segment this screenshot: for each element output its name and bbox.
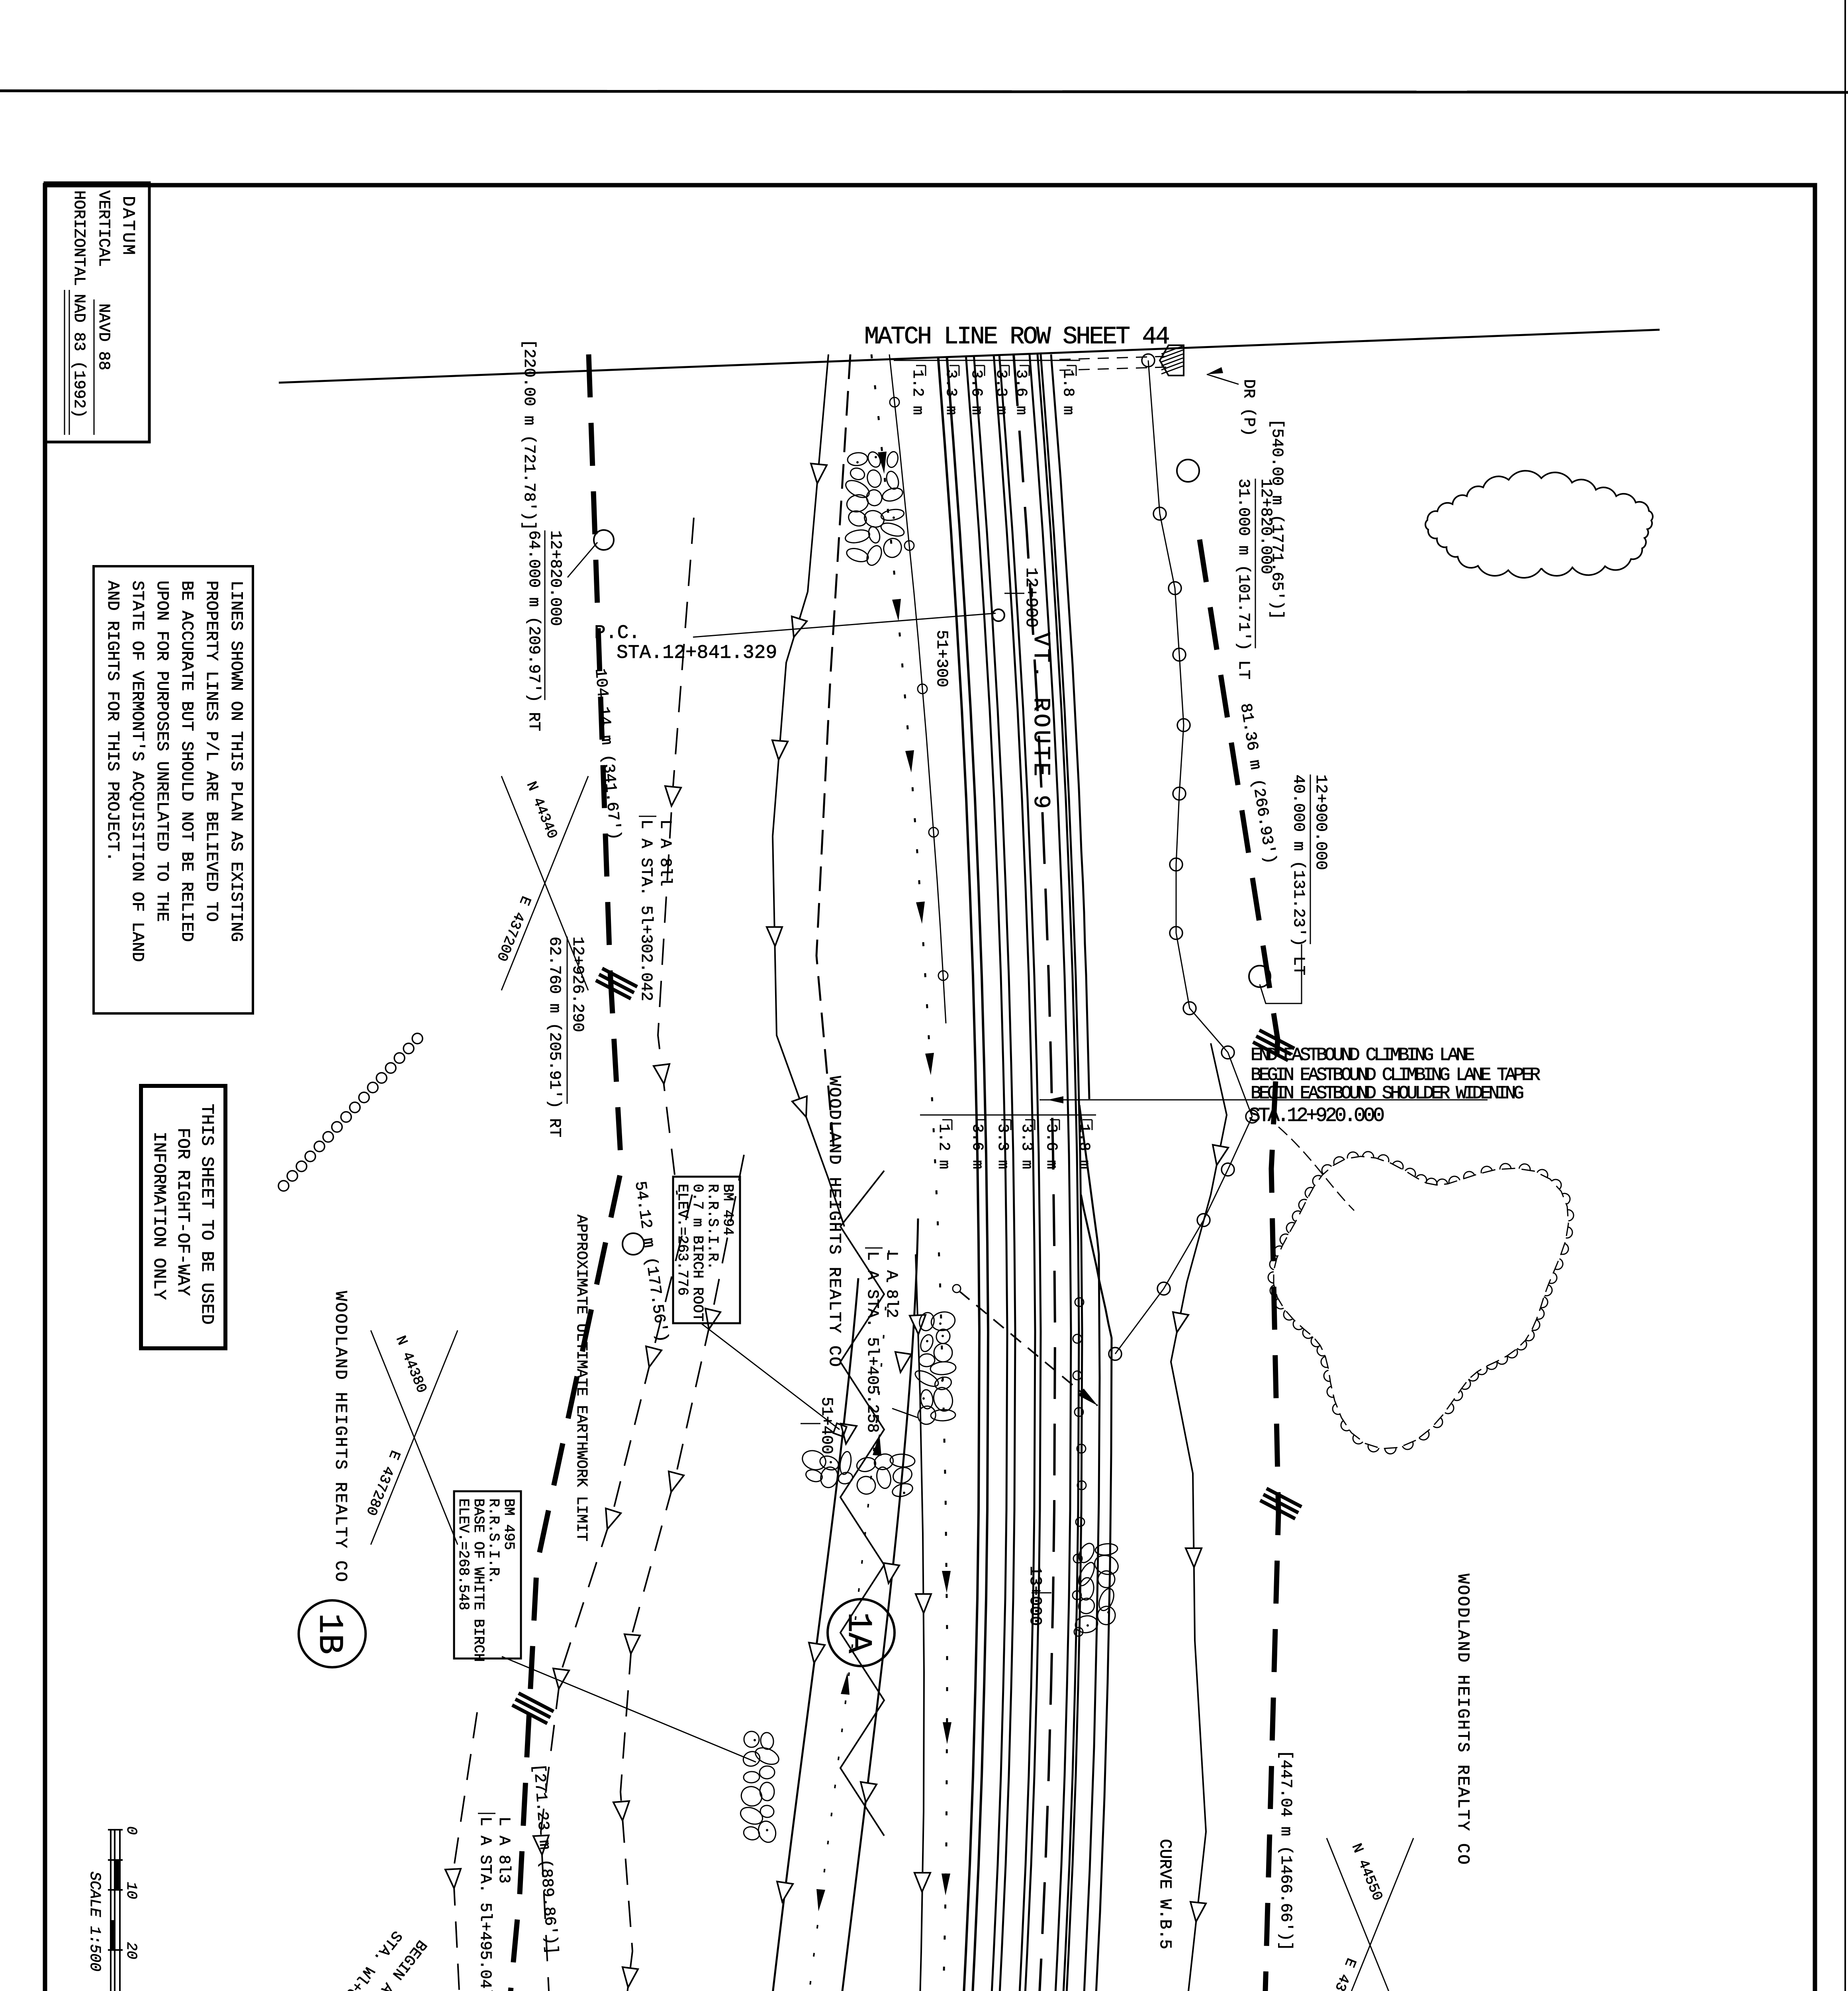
svg-text:0: 0 bbox=[123, 1826, 139, 1835]
svg-text:LINES SHOWN ON THIS PLAN AS EX: LINES SHOWN ON THIS PLAN AS EXISTING bbox=[227, 581, 246, 942]
svg-text:1.8 m: 1.8 m bbox=[1059, 370, 1077, 415]
svg-text:L A 8l3: L A 8l3 bbox=[495, 1817, 513, 1883]
svg-text:3.6 m: 3.6 m bbox=[1012, 370, 1030, 415]
svg-text:UPON FOR PURPOSES UNRELATED TO: UPON FOR PURPOSES UNRELATED TO THE bbox=[153, 581, 172, 922]
svg-text:13+000: 13+000 bbox=[1026, 1566, 1045, 1626]
svg-text:BM 494: BM 494 bbox=[720, 1184, 736, 1236]
svg-text:ELEV.=263.776: ELEV.=263.776 bbox=[674, 1184, 691, 1296]
svg-text:3.3 m: 3.3 m bbox=[942, 370, 959, 415]
svg-text:L A STA. 5l+405.258: L A STA. 5l+405.258 bbox=[863, 1251, 881, 1433]
svg-text:SCALE 1:500: SCALE 1:500 bbox=[86, 1872, 103, 1971]
svg-text:L A 8l2: L A 8l2 bbox=[882, 1251, 900, 1318]
svg-text:NAD 83 (1992): NAD 83 (1992) bbox=[70, 294, 88, 418]
svg-text:12+926.290: 12+926.290 bbox=[568, 937, 586, 1032]
svg-text:[220.00 m (721.78')]: [220.00 m (721.78')] bbox=[520, 339, 538, 530]
svg-text:END EASTBOUND CLIMBING LANE: END EASTBOUND CLIMBING LANE bbox=[1251, 1045, 1474, 1066]
svg-text:R.R.S.I.R.: R.R.S.I.R. bbox=[485, 1498, 502, 1584]
svg-text:12+820.000: 12+820.000 bbox=[1257, 479, 1274, 574]
svg-text:AND RIGHTS FOR THIS PROJECT.: AND RIGHTS FOR THIS PROJECT. bbox=[103, 581, 122, 862]
svg-text:THIS SHEET TO BE USED: THIS SHEET TO BE USED bbox=[197, 1104, 217, 1325]
svg-text:3.3 m: 3.3 m bbox=[994, 1124, 1011, 1169]
svg-text:CURVE W.B.5: CURVE W.B.5 bbox=[1155, 1839, 1175, 1949]
svg-text:WOODLAND HEIGHTS REALTY CO: WOODLAND HEIGHTS REALTY CO bbox=[331, 1291, 350, 1583]
svg-text:51+300: 51+300 bbox=[932, 630, 950, 687]
svg-text:10: 10 bbox=[123, 1882, 139, 1899]
svg-text:STA.12+841.329: STA.12+841.329 bbox=[617, 642, 777, 664]
svg-text:APPROXIMATE ULTIMATE EARTHWORK: APPROXIMATE ULTIMATE EARTHWORK LIMIT bbox=[573, 1215, 590, 1541]
svg-text:51+400: 51+400 bbox=[817, 1397, 835, 1454]
svg-text:3.6 m: 3.6 m bbox=[969, 1124, 986, 1169]
svg-text:40.000 m (131.23') LT: 40.000 m (131.23') LT bbox=[1289, 774, 1307, 975]
svg-text:FOR RIGHT-OF-WAY: FOR RIGHT-OF-WAY bbox=[173, 1128, 193, 1296]
svg-text:20: 20 bbox=[123, 1942, 139, 1959]
svg-text:62.760 m (205.91') RT: 62.760 m (205.91') RT bbox=[545, 937, 563, 1137]
svg-text:3.3 m: 3.3 m bbox=[1018, 1124, 1035, 1169]
svg-text:BEGIN EASTBOUND SHOULDER WIDEN: BEGIN EASTBOUND SHOULDER WIDENING bbox=[1251, 1083, 1523, 1104]
svg-text:ELEV.=268.548: ELEV.=268.548 bbox=[455, 1498, 472, 1610]
svg-text:MATCH LINE ROW SHEET 44: MATCH LINE ROW SHEET 44 bbox=[864, 323, 1169, 351]
svg-text:INFORMATION ONLY: INFORMATION ONLY bbox=[149, 1132, 169, 1300]
svg-text:WOODLAND HEIGHTS REALTY CO: WOODLAND HEIGHTS REALTY CO bbox=[1453, 1574, 1472, 1866]
svg-text:L A STA. 5l+495.04l: L A STA. 5l+495.04l bbox=[476, 1817, 494, 1991]
svg-text:BASE OF WHITE BIRCH: BASE OF WHITE BIRCH bbox=[470, 1498, 487, 1662]
svg-text:[447.04 m (1466.66')]: [447.04 m (1466.66')] bbox=[1276, 1750, 1294, 1951]
svg-text:0.7 m BIRCH ROOT: 0.7 m BIRCH ROOT bbox=[689, 1184, 706, 1322]
svg-text:12+820.000: 12+820.000 bbox=[546, 530, 564, 626]
svg-text:STA.12+920.000: STA.12+920.000 bbox=[1249, 1105, 1384, 1127]
svg-text:WOODLAND HEIGHTS REALTY CO: WOODLAND HEIGHTS REALTY CO bbox=[825, 1076, 844, 1368]
svg-text:P.C.: P.C. bbox=[594, 622, 640, 644]
svg-text:BM 495: BM 495 bbox=[501, 1498, 517, 1550]
svg-text:12+900.000: 12+900.000 bbox=[1312, 774, 1329, 870]
svg-text:64.000 m (209.97') RT: 64.000 m (209.97') RT bbox=[525, 530, 542, 731]
svg-text:1A: 1A bbox=[839, 1612, 878, 1653]
svg-text:3.3 m: 3.3 m bbox=[993, 370, 1010, 415]
svg-text:VERTICAL: VERTICAL bbox=[94, 190, 112, 267]
svg-text:BEGIN EASTBOUND CLIMBING LANE: BEGIN EASTBOUND CLIMBING LANE TAPER bbox=[1251, 1065, 1541, 1085]
svg-text:NAVD 88: NAVD 88 bbox=[94, 303, 112, 370]
svg-text:12+900: 12+900 bbox=[1022, 567, 1041, 628]
svg-text:31.000 m (101.71') LT: 31.000 m (101.71') LT bbox=[1234, 479, 1252, 679]
svg-text:HORIZONTAL: HORIZONTAL bbox=[70, 190, 88, 286]
svg-text:1.2 m: 1.2 m bbox=[935, 1124, 952, 1169]
svg-text:3.6 m: 3.6 m bbox=[968, 370, 985, 415]
svg-text:1.8 m: 1.8 m bbox=[1075, 1124, 1092, 1169]
svg-text:L A STA. 5l+302.042: L A STA. 5l+302.042 bbox=[637, 819, 655, 1001]
svg-text:VT. ROUTE 9: VT. ROUTE 9 bbox=[1028, 632, 1053, 811]
svg-text:R.R.S.I.R.: R.R.S.I.R. bbox=[705, 1184, 721, 1270]
svg-text:3.6 m: 3.6 m bbox=[1043, 1124, 1060, 1169]
svg-text:DATUM: DATUM bbox=[118, 196, 138, 256]
svg-text:L A 8ll: L A 8ll bbox=[656, 819, 674, 886]
svg-text:1B: 1B bbox=[310, 1613, 349, 1654]
svg-text:BE ACCURATE BUT SHOULD NOT BE: BE ACCURATE BUT SHOULD NOT BE RELIED bbox=[177, 581, 196, 942]
svg-text:DR (P): DR (P) bbox=[1239, 379, 1257, 436]
svg-text:PROPERTY LINES P/L ARE BELIEVE: PROPERTY LINES P/L ARE BELIEVED TO bbox=[202, 581, 221, 922]
svg-text:1.2 m: 1.2 m bbox=[909, 370, 926, 415]
svg-text:STATE OF VERMONT'S ACQUISITION: STATE OF VERMONT'S ACQUISITION OF LAND bbox=[128, 581, 147, 962]
